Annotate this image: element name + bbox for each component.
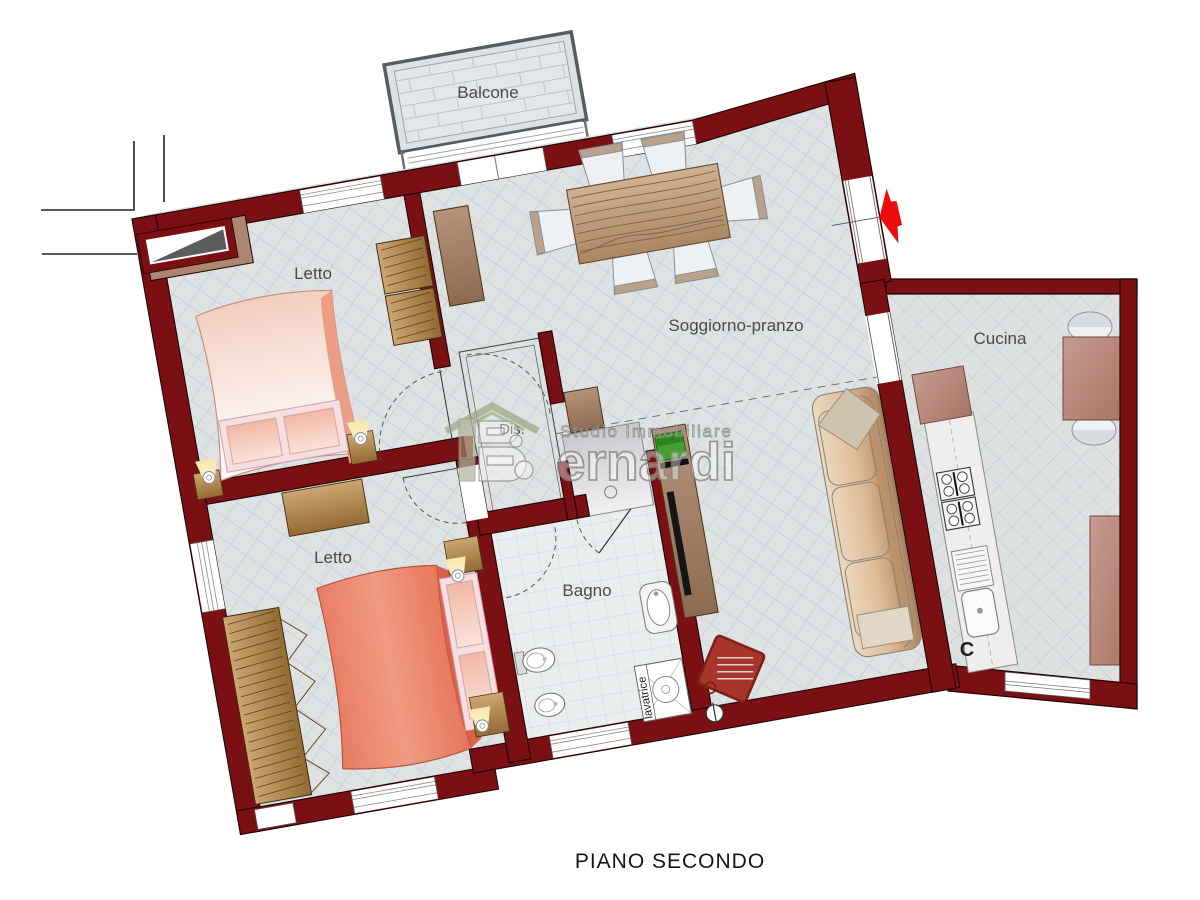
svg-text:PIANO SECONDO: PIANO SECONDO: [575, 850, 765, 873]
svg-text:Soggiorno-pranzo: Soggiorno-pranzo: [668, 316, 803, 335]
svg-text:Letto: Letto: [294, 264, 332, 283]
svg-text:ernardi: ernardi: [556, 433, 736, 492]
svg-text:Balcone: Balcone: [457, 83, 518, 102]
svg-text:C: C: [960, 639, 974, 661]
svg-text:Letto: Letto: [314, 548, 352, 567]
svg-text:Bagno: Bagno: [562, 581, 611, 600]
svg-text:Cucina: Cucina: [974, 329, 1027, 348]
